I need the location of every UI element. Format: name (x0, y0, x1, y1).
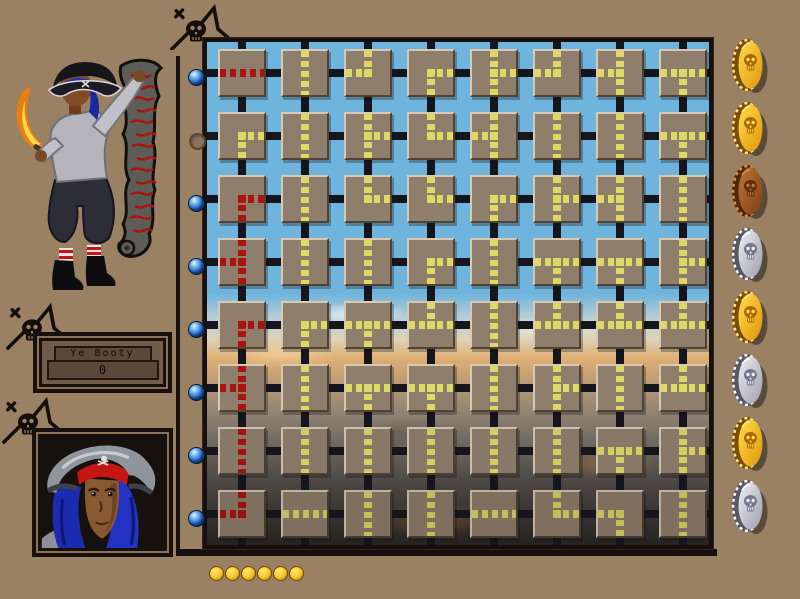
pirate-face (61, 71, 92, 106)
boots (52, 256, 115, 290)
pipe-tile[interactable] (533, 49, 581, 97)
pirate-character-illustration (3, 52, 178, 297)
pipe-tile[interactable] (659, 301, 707, 349)
pipe-tile[interactable] (659, 112, 707, 160)
pipe-tile[interactable] (596, 490, 644, 538)
pipe-tile[interactable] (407, 238, 455, 286)
pipe-tile[interactable] (533, 238, 581, 286)
blue-bandana (63, 78, 95, 92)
pipe-tile[interactable] (596, 364, 644, 412)
pipe-tile[interactable] (218, 112, 266, 160)
bronze-skull-coin (730, 163, 770, 221)
pipe-tile[interactable] (470, 490, 518, 538)
pipe-tile[interactable] (533, 112, 581, 160)
pipe-tile[interactable] (470, 301, 518, 349)
pipe-tile[interactable] (470, 112, 518, 160)
pipe-tile[interactable] (659, 238, 707, 286)
game-screen: Ye Booty 0 (0, 0, 800, 599)
flaming-sword (17, 87, 45, 152)
gold-skull-coin (730, 415, 770, 473)
row-marker (188, 510, 205, 527)
hat-skull-emblem (82, 81, 89, 87)
silver-skull-coin (730, 226, 770, 284)
progress-coin (289, 566, 304, 581)
pirate-portrait (41, 437, 164, 548)
booty-value-box: 0 (47, 360, 159, 380)
progress-coin (241, 566, 256, 581)
pipe-tile[interactable] (596, 238, 644, 286)
left-rail-line (176, 56, 180, 556)
booty-value: 0 (99, 363, 106, 377)
pipe-tile[interactable] (281, 364, 329, 412)
pipe-tile[interactable] (659, 49, 707, 97)
pipe-tile[interactable] (344, 301, 392, 349)
pipe-tile[interactable] (407, 49, 455, 97)
pipe-tile[interactable] (344, 238, 392, 286)
gold-skull-coin (730, 289, 770, 347)
hand-holding-scroll (133, 70, 145, 82)
pipe-tile[interactable] (218, 49, 266, 97)
row-marker (188, 69, 205, 86)
pipe-tile[interactable] (407, 427, 455, 475)
progress-coin (257, 566, 272, 581)
row-marker (188, 384, 205, 401)
scroll-curl (120, 241, 134, 255)
pipe-tile[interactable] (218, 238, 266, 286)
pipe-tile[interactable] (470, 364, 518, 412)
silver-skull-coin (730, 352, 770, 410)
board-background (207, 42, 709, 545)
pipe-tile[interactable] (344, 112, 392, 160)
pipe-tile[interactable] (344, 49, 392, 97)
pipe-tile[interactable] (344, 364, 392, 412)
pipe-tile[interactable] (281, 49, 329, 97)
booty-label: Ye Booty (70, 348, 134, 359)
pipe-tile[interactable] (659, 427, 707, 475)
pipe-tile[interactable] (533, 301, 581, 349)
puzzle-board (203, 38, 713, 549)
sword-arm (37, 138, 63, 162)
row-marker (188, 321, 205, 338)
pipe-tile[interactable] (659, 364, 707, 412)
pipe-tile[interactable] (533, 175, 581, 223)
progress-coin (209, 566, 224, 581)
tricorn-hat (53, 62, 117, 88)
pirate-pants (49, 176, 114, 243)
row-marker (188, 195, 205, 212)
pipe-tile[interactable] (281, 238, 329, 286)
pipe-tile[interactable] (281, 427, 329, 475)
gold-skull-coin (730, 37, 770, 95)
booty-panel: Ye Booty 0 (33, 332, 172, 393)
row-marker (189, 133, 206, 150)
pipe-tile[interactable] (596, 49, 644, 97)
scroll-red-writing (130, 75, 156, 232)
pipe-tile[interactable] (344, 175, 392, 223)
pipe-tile[interactable] (470, 175, 518, 223)
pipe-tile[interactable] (659, 175, 707, 223)
pipe-tile[interactable] (407, 490, 455, 538)
progress-coin (273, 566, 288, 581)
striped-socks (59, 245, 101, 262)
pipe-tile[interactable] (407, 112, 455, 160)
pipe-tile[interactable] (281, 112, 329, 160)
player-portrait-panel (32, 428, 173, 557)
pipe-tile[interactable] (596, 175, 644, 223)
board-bottom-frame (176, 549, 717, 556)
pipe-tile[interactable] (659, 490, 707, 538)
treasure-scroll (119, 60, 161, 256)
pipe-tile[interactable] (533, 427, 581, 475)
pipe-tile[interactable] (407, 364, 455, 412)
pipe-tile[interactable] (218, 301, 266, 349)
pipe-tile[interactable] (218, 175, 266, 223)
pirate-shirt (50, 110, 107, 182)
row-marker (188, 258, 205, 275)
pipe-tile[interactable] (470, 238, 518, 286)
hand-holding-sword (35, 150, 47, 162)
pipe-tile[interactable] (596, 112, 644, 160)
pipe-tile[interactable] (218, 490, 266, 538)
pipe-tile[interactable] (344, 490, 392, 538)
row-marker (188, 447, 205, 464)
progress-coin (225, 566, 240, 581)
pipe-tile[interactable] (281, 490, 329, 538)
pipe-tile[interactable] (407, 301, 455, 349)
pipe-tile[interactable] (596, 301, 644, 349)
pipe-tile[interactable] (218, 364, 266, 412)
blue-bandana-tail (89, 86, 99, 120)
raised-arm (93, 78, 143, 136)
gold-skull-coin (730, 100, 770, 158)
pipe-tile[interactable] (281, 175, 329, 223)
pipe-tile[interactable] (281, 301, 329, 349)
progress-coin-row (209, 566, 305, 581)
pipe-tile[interactable] (533, 490, 581, 538)
pipe-tile[interactable] (344, 427, 392, 475)
pipe-tile[interactable] (218, 427, 266, 475)
pipe-tile[interactable] (470, 49, 518, 97)
pipe-tile[interactable] (407, 175, 455, 223)
pipe-tile[interactable] (533, 364, 581, 412)
pipe-tile[interactable] (596, 427, 644, 475)
silver-skull-coin (730, 478, 770, 536)
pipe-tile[interactable] (470, 427, 518, 475)
